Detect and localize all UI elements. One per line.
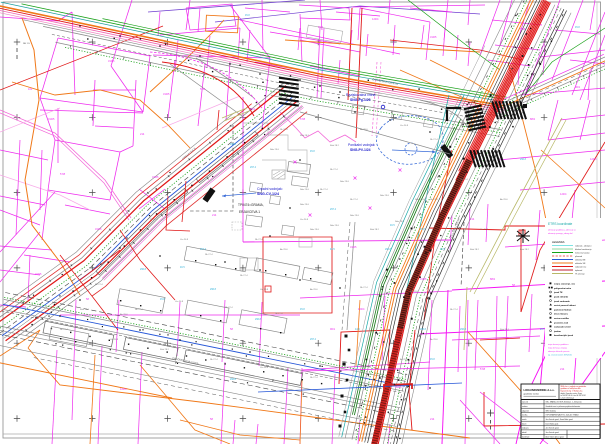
svg-text:214: 214 <box>405 87 410 91</box>
svg-text:310/5: 310/5 <box>350 245 357 249</box>
svg-text:plinovod: plinovod <box>575 256 582 258</box>
svg-text:45.8: 45.8 <box>310 150 315 153</box>
svg-text:Nk 27.4: Nk 27.4 <box>460 179 468 181</box>
svg-text:cestna svetilka: cestna svetilka <box>554 317 570 320</box>
svg-text:Ab 29.6: Ab 29.6 <box>120 313 128 316</box>
svg-text:podzemni hidrant: podzemni hidrant <box>554 308 572 311</box>
svg-text:88/2: 88/2 <box>530 117 536 121</box>
svg-text:57/8: 57/8 <box>60 172 66 176</box>
svg-text:toplovod: toplovod <box>575 269 582 272</box>
svg-text:prometni znak: prometni znak <box>554 321 569 324</box>
svg-text:96/1: 96/1 <box>318 25 324 29</box>
svg-text:SNG-Pg-1/23: SNG-Pg-1/23 <box>350 98 371 102</box>
svg-text:Nk 27.4: Nk 27.4 <box>255 239 263 241</box>
svg-text:101: 101 <box>28 87 33 91</box>
svg-text:296.8: 296.8 <box>460 328 467 331</box>
svg-text:57/8: 57/8 <box>480 367 486 371</box>
svg-text:elektrika SN: elektrika SN <box>575 262 586 265</box>
svg-text:45.8: 45.8 <box>420 228 425 231</box>
svg-text:296.8: 296.8 <box>140 268 147 271</box>
svg-text:310/5: 310/5 <box>430 35 437 39</box>
svg-text:kanalizacijski jasek: kanalizacijski jasek <box>554 335 574 337</box>
svg-text:44.9: 44.9 <box>90 318 95 321</box>
svg-text:op. visinski sistem SVS2010: op. visinski sistem SVS2010 <box>548 354 572 357</box>
svg-text:Vm 26.9: Vm 26.9 <box>260 367 269 369</box>
svg-text:Nk 27.4: Nk 27.4 <box>95 284 103 286</box>
svg-text:101: 101 <box>260 53 265 57</box>
svg-text:Vm 26.9: Vm 26.9 <box>180 239 189 241</box>
svg-text:Ab 29.6: Ab 29.6 <box>400 358 408 361</box>
svg-text:45.8: 45.8 <box>245 14 250 17</box>
svg-text:Nk 27.4: Nk 27.4 <box>310 377 318 379</box>
svg-text:Rab 28.2: Rab 28.2 <box>80 309 90 311</box>
svg-text:Nde 23.6: Nde 23.6 <box>310 229 320 231</box>
svg-text:214: 214 <box>470 217 475 221</box>
svg-text:310/5: 310/5 <box>163 92 170 96</box>
svg-text:123/4: 123/4 <box>590 157 597 161</box>
svg-text:meja obmocja urejanja: meja obmocja urejanja <box>548 347 568 350</box>
svg-text:Nk 27.4: Nk 27.4 <box>320 189 328 191</box>
svg-text:ETRS koordinate: ETRS koordinate <box>548 222 572 226</box>
svg-text:297.4: 297.4 <box>320 68 327 71</box>
svg-text:310/5: 310/5 <box>395 385 402 389</box>
svg-text:merilo: merilo <box>522 419 526 421</box>
svg-text:Rab 28.2: Rab 28.2 <box>370 229 380 231</box>
svg-text:Nk 27.4: Nk 27.4 <box>450 309 458 311</box>
svg-text:Ponikalni vodnjak:: Ponikalni vodnjak: <box>348 143 375 147</box>
svg-text:meja obmocja gradbisca: meja obmocja gradbisca <box>548 343 569 346</box>
svg-text:vsebina: vsebina <box>522 406 528 408</box>
svg-text:45.8: 45.8 <box>160 298 165 301</box>
svg-text:Vm 26.9: Vm 26.9 <box>110 339 119 341</box>
svg-text:Nk 27.4: Nk 27.4 <box>210 359 218 361</box>
svg-text:310/5: 310/5 <box>152 175 159 179</box>
svg-text:Nde 23.6: Nde 23.6 <box>330 225 340 227</box>
svg-text:mejno znamenje, mm: mejno znamenje, mm <box>554 284 575 286</box>
svg-text:310/5: 310/5 <box>420 277 427 281</box>
svg-text:LEGENDA:: LEGENDA: <box>552 240 565 244</box>
svg-text:Vm 26.9: Vm 26.9 <box>400 125 409 127</box>
svg-text:123/4: 123/4 <box>560 192 567 196</box>
svg-text:Jure Gorisek geod.: Jure Gorisek geod. <box>546 428 560 430</box>
svg-text:Ab 29.6: Ab 29.6 <box>360 384 368 387</box>
svg-text:296.8: 296.8 <box>230 143 237 146</box>
svg-text:123/4: 123/4 <box>372 17 379 21</box>
svg-text:drevo listavec: drevo listavec <box>554 313 569 316</box>
svg-text:vodovod novi: vodovod novi <box>575 266 587 268</box>
svg-text:296.8: 296.8 <box>385 248 392 251</box>
svg-text:obmocje gradbisca_obmocje ur.: obmocje gradbisca_obmocje ur. <box>548 230 577 232</box>
svg-text:Nk 27.4: Nk 27.4 <box>150 219 158 221</box>
svg-text:Raziskovalna vrtina: Raziskovalna vrtina <box>346 93 376 97</box>
svg-text:vodovod - obstojeci: vodovod - obstojeci <box>575 244 592 247</box>
svg-text:e-mail: info@sng.si: e-mail: info@sng.si <box>561 397 575 399</box>
svg-text:Nde 23.6: Nde 23.6 <box>300 189 310 191</box>
svg-text:310/5: 310/5 <box>35 272 42 276</box>
svg-text:Nk 27.4: Nk 27.4 <box>240 275 248 277</box>
svg-text:45.8: 45.8 <box>575 26 580 29</box>
svg-text:izdelal: izdelal <box>522 432 527 434</box>
svg-text:Vm 26.9: Vm 26.9 <box>175 301 184 303</box>
svg-text:Vm 26.9: Vm 26.9 <box>300 219 309 221</box>
svg-text:296.8: 296.8 <box>520 158 527 161</box>
svg-text:123/4: 123/4 <box>358 307 365 311</box>
svg-text:44.9: 44.9 <box>355 328 360 331</box>
svg-text:Kapucinski trg 7, Skofja Loka: Kapucinski trg 7, Skofja Loka <box>561 389 583 392</box>
svg-text:Ab 29.6: Ab 29.6 <box>430 338 438 341</box>
svg-text:poligonska tocka: poligonska tocka <box>554 287 572 290</box>
svg-text:57/8: 57/8 <box>520 27 526 31</box>
svg-text:Nde 23.6: Nde 23.6 <box>380 195 390 197</box>
svg-text:fekalna kanalizacija: fekalna kanalizacija <box>575 249 592 251</box>
svg-text:310/5: 310/5 <box>108 59 115 63</box>
svg-text:Rab 28.2: Rab 28.2 <box>300 135 310 137</box>
svg-text:310/5: 310/5 <box>95 227 102 231</box>
svg-text:46.5: 46.5 <box>180 266 185 269</box>
svg-text:vodja pro.: vodja pro. <box>522 428 530 430</box>
svg-text:Nde 23.6: Nde 23.6 <box>350 215 360 217</box>
svg-text:214: 214 <box>212 213 217 217</box>
svg-text:Ab 29.6: Ab 29.6 <box>410 290 418 293</box>
svg-text:jasek vodovoda: jasek vodovoda <box>553 301 570 303</box>
svg-text:297.4: 297.4 <box>330 208 337 211</box>
svg-text:vodovodni ventil: vodovodni ventil <box>554 326 571 329</box>
svg-text:Rab 28.2: Rab 28.2 <box>160 349 170 351</box>
svg-text:NE 1%: NE 1% <box>23 43 30 45</box>
svg-text:Damir Babic geod.: Damir Babic geod. <box>546 423 560 425</box>
svg-text:ERJAVCEVA 1: ERJAVCEVA 1 <box>239 210 260 214</box>
svg-text:Vm 26.9: Vm 26.9 <box>480 229 489 231</box>
svg-text:elektrika NN: elektrika NN <box>575 258 586 261</box>
svg-text:Nde 23.6: Nde 23.6 <box>340 181 350 183</box>
svg-text:SNG-PV-1/24: SNG-PV-1/24 <box>350 148 371 152</box>
svg-text:88/2: 88/2 <box>490 277 496 281</box>
svg-text:Rab 28.2: Rab 28.2 <box>470 249 480 251</box>
svg-text:Jure Gorisek geod.; Damir Babi: Jure Gorisek geod.; Damir Babic geod. <box>546 419 574 421</box>
svg-text:Vm 26.9: Vm 26.9 <box>260 289 269 291</box>
svg-text:Nk 27.4: Nk 27.4 <box>430 199 438 201</box>
svg-text:Nk 27.4: Nk 27.4 <box>60 329 68 331</box>
svg-text:Ab 29.6: Ab 29.6 <box>310 288 318 291</box>
svg-text:296.8: 296.8 <box>420 328 427 331</box>
svg-text:296.8: 296.8 <box>210 288 217 291</box>
svg-text:narocnik: narocnik <box>522 402 528 404</box>
svg-text:297.4: 297.4 <box>250 166 257 169</box>
svg-text:Nk 27.4: Nk 27.4 <box>205 254 213 256</box>
svg-text:57/8: 57/8 <box>300 117 306 121</box>
svg-text:214: 214 <box>140 132 145 136</box>
svg-text:Nk 27.4: Nk 27.4 <box>360 287 368 289</box>
svg-text:297.4: 297.4 <box>310 338 317 341</box>
svg-text:cestni pozarni hidrant: cestni pozarni hidrant <box>554 304 576 307</box>
svg-text:Nk 27.4: Nk 27.4 <box>135 309 143 311</box>
svg-text:Nk 27.4: Nk 27.4 <box>350 199 358 201</box>
svg-text:Ab 29.6: Ab 29.6 <box>500 198 508 201</box>
svg-text:obmocje posega_obseg del: obmocje posega_obseg del <box>548 233 573 235</box>
svg-text:jasek TK: jasek TK <box>553 292 563 294</box>
svg-text:TP0474=GRAMA,: TP0474=GRAMA, <box>238 203 264 207</box>
svg-text:geodetske storitve: geodetske storitve <box>524 393 539 396</box>
svg-text:296.8: 296.8 <box>230 378 237 381</box>
svg-text:Nk 27.4: Nk 27.4 <box>330 169 338 171</box>
svg-text:Nde 23.6: Nde 23.6 <box>395 221 405 223</box>
svg-text:Ab 29.6: Ab 29.6 <box>360 128 368 131</box>
svg-text:96/1: 96/1 <box>250 107 256 111</box>
svg-text:96/1: 96/1 <box>575 85 581 89</box>
svg-text:Nk 27.4: Nk 27.4 <box>430 139 438 141</box>
svg-text:jasek elektrike: jasek elektrike <box>553 296 569 299</box>
svg-text:96/1: 96/1 <box>330 327 336 331</box>
svg-text:SNG-CV-1/24: SNG-CV-1/24 <box>257 192 279 196</box>
svg-text:Crpalni vodnjak:: Crpalni vodnjak: <box>257 187 283 191</box>
svg-text:Nde 23.6: Nde 23.6 <box>300 204 310 206</box>
svg-text:46.5: 46.5 <box>390 224 395 227</box>
svg-text:odgovorni: odgovorni <box>522 410 530 412</box>
svg-text:Nk 27.4: Nk 27.4 <box>280 129 288 131</box>
svg-text:Nde 23.6: Nde 23.6 <box>270 149 280 151</box>
svg-text:297.4: 297.4 <box>200 248 207 251</box>
svg-text:57/8: 57/8 <box>200 87 206 91</box>
svg-text:123/4: 123/4 <box>120 387 127 391</box>
svg-text:Ab 29.6: Ab 29.6 <box>280 248 288 251</box>
svg-text:296.8: 296.8 <box>255 318 262 321</box>
svg-text:Rab 28.2: Rab 28.2 <box>330 145 340 147</box>
svg-text:Nde 23.6: Nde 23.6 <box>415 199 425 201</box>
svg-text:46.5: 46.5 <box>440 248 445 251</box>
svg-text:meteorna kanaliz.: meteorna kanaliz. <box>575 251 590 254</box>
svg-text:Nk 27.4: Nk 27.4 <box>275 313 283 315</box>
svg-text:GEO Gradiska: GEO Gradiska <box>546 410 556 412</box>
svg-text:310/5: 310/5 <box>48 117 55 121</box>
svg-text:214: 214 <box>430 417 435 421</box>
svg-text:45.8: 45.8 <box>300 308 305 311</box>
svg-text:obmocje delovnih povrsin: obmocje delovnih povrsin <box>548 350 569 353</box>
svg-text:TK omrezje: TK omrezje <box>575 272 585 275</box>
svg-text:46.5: 46.5 <box>330 248 335 251</box>
svg-text:Nk 27.4: Nk 27.4 <box>225 307 233 309</box>
svg-text:LOKAINZENIRING d.o.o.: LOKAINZENIRING d.o.o. <box>524 388 555 392</box>
svg-text:jambor: jambor <box>553 330 561 333</box>
svg-text:45.8: 45.8 <box>430 358 435 361</box>
svg-text:Rab 28.2: Rab 28.2 <box>500 329 510 331</box>
svg-text:Rab 28.2: Rab 28.2 <box>520 249 530 251</box>
svg-text:Jure Gorisek geod.: Jure Gorisek geod. <box>546 432 560 434</box>
svg-text:214: 214 <box>560 367 565 371</box>
